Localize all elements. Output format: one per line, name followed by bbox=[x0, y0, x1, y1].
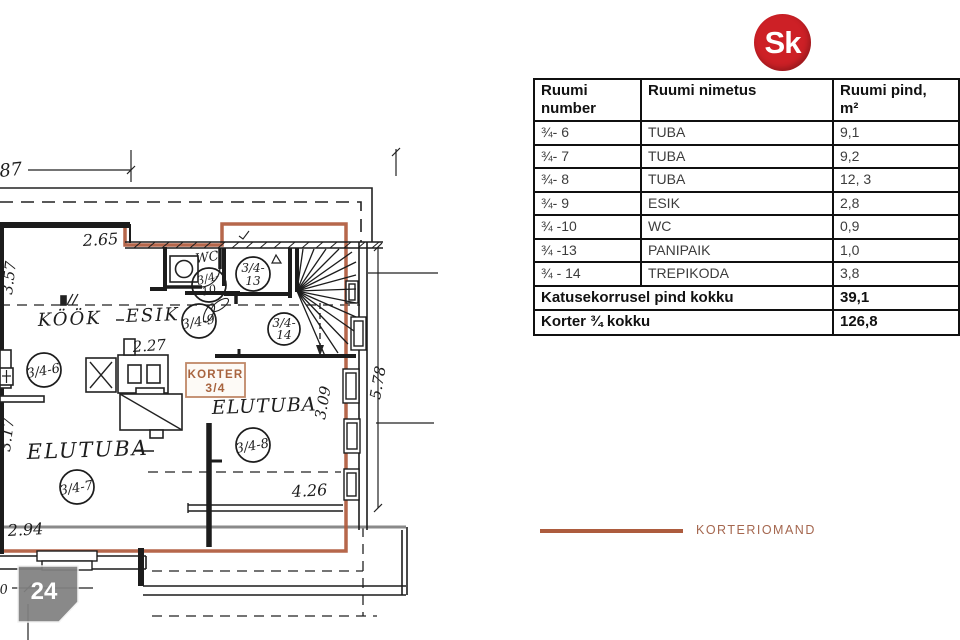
dim-top-left: 87 bbox=[0, 159, 24, 182]
header-room-area: Ruumi pind,m² bbox=[833, 79, 959, 121]
label-kook: KÖÖK bbox=[36, 306, 102, 331]
brochure-page: { "logo": { "text": "Sk" }, "table": { "… bbox=[0, 0, 960, 640]
svg-text:13: 13 bbox=[245, 274, 261, 288]
svg-text:3/4-6: 3/4-6 bbox=[26, 361, 62, 382]
svg-text:3/4-7: 3/4-7 bbox=[59, 478, 95, 499]
table-row: ¾- 6TUBA9,1 bbox=[534, 121, 959, 145]
roof-outline-lines bbox=[0, 188, 372, 242]
dim-294: 2.94 bbox=[6, 519, 44, 540]
table-row: ¾- 8TUBA12, 3 bbox=[534, 168, 959, 192]
table-total-apartment-row: Korter ¾ kokku126,8 bbox=[534, 310, 959, 335]
table-total-floor-row: Katusekorrusel pind kokku39,1 bbox=[534, 286, 959, 311]
dim-227: 2.27 bbox=[131, 336, 167, 356]
dim-bottom-left: 0 bbox=[0, 582, 9, 598]
svg-text:14: 14 bbox=[276, 328, 291, 342]
dim-357: 3.57 bbox=[0, 260, 20, 296]
floor-plan: 3/4-6 3/4-7 3/4-8 3/4-9 3/4- 10 3/4- 13 … bbox=[0, 0, 520, 640]
legend-boundary-line bbox=[540, 529, 683, 533]
label-wc: WC bbox=[194, 249, 219, 267]
dim-426: 4.26 bbox=[290, 480, 328, 501]
svg-text:3/4-9: 3/4-9 bbox=[181, 312, 217, 333]
svg-text:10: 10 bbox=[200, 281, 218, 298]
table-header-row: Ruuminumber Ruumi nimetus Ruumi pind,m² bbox=[534, 79, 959, 121]
dim-578: 5.78 bbox=[366, 365, 390, 401]
table-row: ¾ - 14TREPIKODA3,8 bbox=[534, 262, 959, 286]
korter-tag: KORTER 3/4 bbox=[186, 363, 245, 397]
svg-text:3/4: 3/4 bbox=[205, 381, 225, 395]
svg-text:3/4-: 3/4- bbox=[241, 261, 264, 275]
table-row: ¾- 7TUBA9,2 bbox=[534, 145, 959, 169]
label-elutuba-left: ELUTUBA bbox=[25, 436, 149, 464]
table-row: ¾- 9ESIK2,8 bbox=[534, 192, 959, 216]
svg-text:KORTER: KORTER bbox=[188, 369, 244, 381]
header-room-name: Ruumi nimetus bbox=[641, 79, 833, 121]
page-number-badge: 24 bbox=[18, 566, 78, 622]
sk-logo: Sk bbox=[754, 14, 811, 71]
dim-309: 3.09 bbox=[311, 384, 335, 420]
page-number: 24 bbox=[31, 578, 58, 605]
sk-logo-text: Sk bbox=[765, 27, 801, 58]
dim-265: 2.65 bbox=[81, 229, 119, 250]
label-esik: ESIK bbox=[124, 304, 180, 327]
dim-317: 3.17 bbox=[0, 417, 18, 453]
legend-label: KORTERIOMAND bbox=[696, 523, 816, 537]
table-row: ¾ -13PANIPAIK1,0 bbox=[534, 239, 959, 263]
svg-text:3/4-8: 3/4-8 bbox=[235, 436, 271, 457]
room-table: Ruuminumber Ruumi nimetus Ruumi pind,m² … bbox=[533, 78, 960, 336]
header-room-number: Ruuminumber bbox=[534, 79, 641, 121]
table-row: ¾ -10WC0,9 bbox=[534, 215, 959, 239]
